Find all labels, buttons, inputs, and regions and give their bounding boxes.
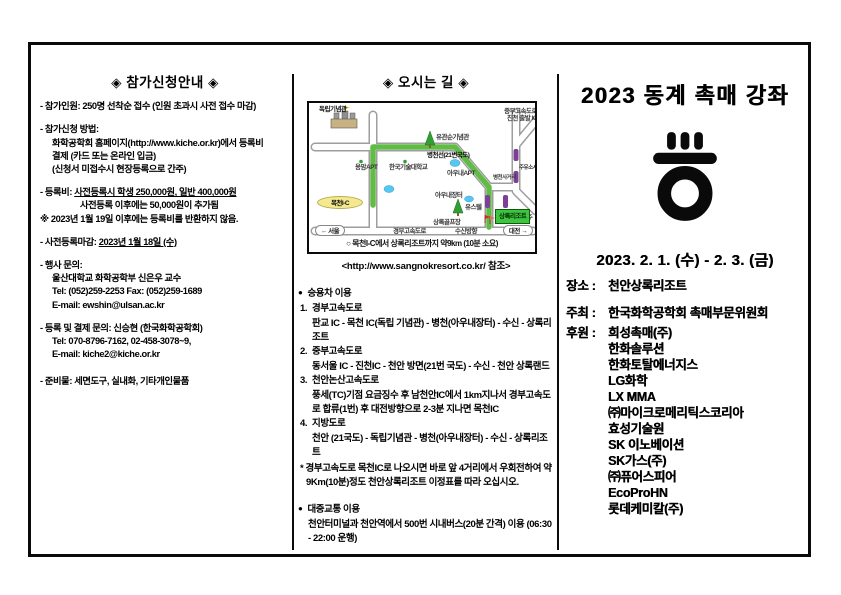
sponsor-item: EcoProHN bbox=[608, 485, 743, 501]
apply-method-line: (신청서 미접수시 현장등록으로 간주) bbox=[40, 163, 290, 176]
overpass-marker bbox=[503, 195, 508, 208]
event-title: 2023 동계 촉매 강좌 bbox=[562, 78, 808, 110]
column-divider-right bbox=[557, 74, 559, 550]
fee-refund-line: ※ 2023년 1월 19일 이후에는 등록비를 반환하지 않음. bbox=[40, 213, 290, 226]
fee-line: - 등록비: 사전등록시 학생 250,000원, 일반 400,000원 bbox=[40, 186, 290, 199]
sponsor-label: 후원 : bbox=[566, 325, 608, 517]
directions-title: ◈ 오시는 길 ◈ bbox=[298, 76, 554, 90]
leaflet-page: ◈ 참가신청안내 ◈ - 참가인원: 250명 선착순 접수 (인원 초과시 사… bbox=[0, 0, 841, 595]
event-info: 장소 : 천안상록리조트 주최 : 한국화학공학회 촉매부문위원회 후원 : 희… bbox=[566, 278, 808, 517]
overpass-marker bbox=[514, 149, 519, 161]
sponsor-item: 한화토탈에너지스 bbox=[608, 357, 743, 373]
sponsor-list: 희성촉매(주) 한화솔루션 한화토탈에너지스 LG화학 LX MMA ㈜마이크로… bbox=[608, 325, 743, 517]
sponsor-item: ㈜퓨어스피어 bbox=[608, 469, 743, 485]
overpass-marker bbox=[485, 195, 490, 208]
map-label-road21: 병천선(21번국도) bbox=[427, 152, 469, 159]
sponsor-item: LX MMA bbox=[608, 389, 743, 405]
bullet-icon: ● bbox=[298, 504, 302, 513]
resort-url-note: <http://www.sangnokresort.co.kr/ 참조> bbox=[298, 260, 554, 274]
route-name: 지방도로 bbox=[312, 417, 554, 431]
sponsor-item: 롯데케미칼(주) bbox=[608, 501, 743, 517]
map-label-daejeon: 대전 → bbox=[503, 225, 533, 236]
payment-contact-head: - 등록 및 결제 문의: 신승현 (한국화학공학회) bbox=[40, 322, 290, 335]
map-label-seoul: ← 서울 bbox=[315, 225, 345, 236]
route-number: 4. bbox=[298, 417, 312, 460]
map-label-youth-hostel: 유스텔 bbox=[465, 204, 481, 211]
deadline-line: - 사전등록마감: 2023년 1월 18일 (수) bbox=[40, 236, 290, 249]
payment-contact-phone: Tel: 070-8796-7162, 02-458-3078~9, bbox=[40, 335, 290, 348]
route-desc: 동서울 IC - 진천IC - 천안 방면(21번 국도) - 수신 - 천안 … bbox=[312, 360, 554, 374]
route-number: 1. bbox=[298, 302, 312, 345]
sponsor-item: 한화솔루션 bbox=[608, 341, 743, 357]
payment-contact-email: E-mail: kiche2@kiche.or.kr bbox=[40, 348, 290, 361]
route-item: 4. 지방도로천안 (21국도) - 독립기념관 - 병천(아우내장터) - 수… bbox=[298, 417, 554, 460]
route-note: * 경부고속도로 목천IC로 나오시면 바로 앞 4거리에서 우회전하여 약 9… bbox=[298, 462, 554, 491]
car-directions-section: ●승용차 이용 1. 경부고속도로판교 IC - 목천 IC(독립 기념관) -… bbox=[298, 286, 554, 491]
route-item: 1. 경부고속도로판교 IC - 목천 IC(독립 기념관) - 병천(아우내장… bbox=[298, 302, 554, 345]
catalysis-society-logo bbox=[638, 132, 732, 223]
deadline-date: 2023년 1월 18일 (수) bbox=[99, 237, 177, 247]
event-date: 2023. 2. 1. (수) - 2. 3. (금) bbox=[562, 249, 808, 270]
transit-body: 천안터미널과 천안역에서 500번 시내버스(20분 간격) 이용 (06:30… bbox=[298, 518, 554, 547]
registration-title: ◈ 참가신청안내 ◈ bbox=[40, 76, 290, 89]
place-row: 장소 : 천안상록리조트 bbox=[566, 278, 808, 294]
map-label-byeongcheon-jct: 병천사거리 bbox=[493, 175, 516, 182]
map-label-yongam-apt: 용암APT bbox=[355, 164, 377, 171]
route-desc: 천안 (21국도) - 독립기념관 - 병천(아우내장터) - 수신 - 상록리… bbox=[312, 432, 554, 461]
route-item: 3. 천안논산고속도로풍세(TC)기점 요금징수 후 남천안IC에서 1km지나… bbox=[298, 374, 554, 417]
map-label-gyeongbu-hwy: 경부고속도로 bbox=[393, 228, 426, 235]
fee-surcharge-line: 사전등록 이후에는 50,000원이 추가됨 bbox=[40, 199, 290, 212]
column-divider-left bbox=[292, 74, 294, 550]
map-label-aunae-market: 아우내장터 bbox=[435, 192, 462, 199]
tree-icon bbox=[453, 199, 463, 216]
route-number: 3. bbox=[298, 374, 312, 417]
transit-section: ●대중교통 이용 천안터미널과 천안역에서 500번 시내버스(20분 간격) … bbox=[298, 502, 554, 547]
fee-block: - 등록비: 사전등록시 학생 250,000원, 일반 400,000원 사전… bbox=[40, 186, 290, 226]
sponsor-item: ㈜마이크로메리틱스코리아 bbox=[608, 405, 743, 421]
route-name: 경부고속도로 bbox=[312, 302, 554, 316]
host-label: 주최 : bbox=[566, 305, 608, 321]
car-directions-head: ●승용차 이용 bbox=[298, 286, 554, 301]
event-contact-phone: Tel: (052)259-2253 Fax: (052)259-1689 bbox=[40, 285, 290, 298]
sponsor-item: 효성기술원 bbox=[608, 421, 743, 437]
event-contact-block: - 행사 문의: 울산대학교 화학공학부 신은우 교수 Tel: (052)25… bbox=[40, 259, 290, 312]
map-label-jincheon-ic: 진천 출발 IC bbox=[495, 115, 537, 122]
bullet-icon: ● bbox=[298, 288, 302, 297]
map-label-resort: 상록리조트 bbox=[495, 209, 530, 224]
map-label-gas: 주유소시설 bbox=[519, 165, 537, 172]
apply-method-line: 화학공학회 홈페이지(http://www.kiche.or.kr)에서 등록비 bbox=[40, 137, 290, 150]
map-label-kut-univ: 한국기술대학교 bbox=[389, 164, 427, 171]
route-desc: 풍세(TC)기점 요금징수 후 남천안IC에서 1km지나서 경부고속도로 합류… bbox=[312, 389, 554, 418]
map-label-aunae-apt: 아우내APT bbox=[447, 170, 475, 177]
apply-method-line: 결제 (카드 또는 온라인 입금) bbox=[40, 150, 290, 163]
sponsor-item: SK가스(주) bbox=[608, 453, 743, 469]
apply-method-block: - 참가신청 방법: 화학공학회 홈페이지(http://www.kiche.o… bbox=[40, 123, 290, 176]
map-label-susin: 수신방향 bbox=[455, 228, 477, 235]
sponsor-row: 후원 : 희성촉매(주) 한화솔루션 한화토탈에너지스 LG화학 LX MMA … bbox=[566, 325, 808, 517]
route-number: 2. bbox=[298, 345, 312, 374]
host-row: 주최 : 한국화학공학회 촉매부문위원회 bbox=[566, 305, 808, 321]
sponsor-item: 희성촉매(주) bbox=[608, 325, 743, 341]
event-contact-head: - 행사 문의: bbox=[40, 259, 290, 272]
transit-head: ●대중교통 이용 bbox=[298, 502, 554, 517]
route-name: 천안논산고속도로 bbox=[312, 374, 554, 388]
host-value: 한국화학공학회 촉매부문위원회 bbox=[608, 305, 768, 321]
map-caption: ○ 목천I-C에서 상록리조트까지 약9km (10분 소요) bbox=[309, 237, 535, 251]
capacity-line: - 참가인원: 250명 선착순 접수 (인원 초과시 사전 접수 마감) bbox=[40, 100, 290, 113]
map: 독립기념관 중부고속도로 진천 출발 IC 유관순기념관 병천선(21번국도) … bbox=[307, 101, 537, 254]
sponsor-item: SK 이노베이션 bbox=[608, 437, 743, 453]
sponsor-item: LG화학 bbox=[608, 373, 743, 389]
registration-panel: ◈ 참가신청안내 ◈ - 참가인원: 250명 선착순 접수 (인원 초과시 사… bbox=[40, 72, 290, 399]
deadline-head: - 사전등록마감: bbox=[40, 237, 99, 247]
fee-head: - 등록비: bbox=[40, 187, 74, 197]
event-contact-email: E-mail: ewshin@ulsan.ac.kr bbox=[40, 299, 290, 312]
place-value: 천안상록리조트 bbox=[608, 278, 686, 294]
apply-method-head: - 참가신청 방법: bbox=[40, 123, 290, 136]
route-desc: 판교 IC - 목천 IC(독립 기념관) - 병천(아우내장터) - 수신 -… bbox=[312, 317, 554, 346]
map-label-memorial-hall: 독립기념관 bbox=[319, 106, 346, 113]
map-label-golf: 상록골프장 bbox=[433, 219, 460, 226]
directions-panel: ◈ 오시는 길 ◈ bbox=[298, 72, 554, 547]
place-label: 장소 : bbox=[566, 278, 608, 294]
map-label-yugwansun: 유관순기념관 bbox=[436, 134, 469, 141]
fee-amounts: 사전등록시 학생 250,000원, 일반 400,000원 bbox=[74, 187, 236, 197]
supplies-line: - 준비물: 세면도구, 실내화, 기타개인물품 bbox=[40, 375, 290, 388]
route-name: 중부고속도로 bbox=[312, 345, 554, 359]
route-item: 2. 중부고속도로동서울 IC - 진천IC - 천안 방면(21번 국도) -… bbox=[298, 345, 554, 374]
event-contact-person: 울산대학교 화학공학부 신은우 교수 bbox=[40, 272, 290, 285]
payment-contact-block: - 등록 및 결제 문의: 신승현 (한국화학공학회) Tel: 070-879… bbox=[40, 322, 290, 362]
